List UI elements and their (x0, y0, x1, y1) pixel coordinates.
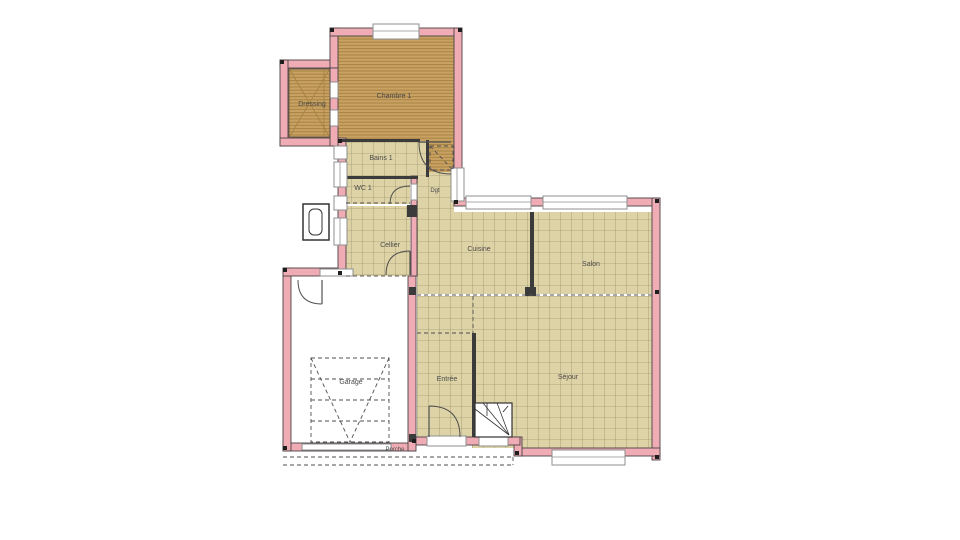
door-garage (298, 280, 322, 304)
utility-box (303, 204, 329, 240)
label-sejour: Séjour (558, 374, 579, 381)
label-dressing: Dressing (298, 101, 326, 108)
room-cellier (346, 206, 410, 276)
window-left-1 (334, 146, 347, 159)
floor-plan-page: Dressing Chambre 1 Bains 1 WC 1 Dgt Cell… (0, 0, 960, 540)
wall-right (652, 198, 660, 460)
sliding-opening-dressing-1 (330, 82, 338, 98)
wall-dressing-left (280, 60, 288, 146)
label-garage: Garage (339, 379, 362, 386)
window-left-4 (334, 218, 347, 245)
label-wc-1: WC 1 (354, 185, 372, 192)
label-dgt: Dgt (430, 188, 440, 194)
label-salon: Salon (582, 261, 600, 268)
label-cellier: Cellier (380, 242, 401, 249)
window-dgt-right (451, 168, 464, 201)
window-sejour-bottom (552, 450, 625, 465)
floor-plan-drawing: Dressing Chambre 1 Bains 1 WC 1 Dgt Cell… (0, 0, 960, 540)
room-salon (534, 212, 652, 294)
wall-garage-east (408, 276, 416, 451)
door-opening-wc (411, 184, 417, 200)
wall-cuisine-salon (530, 212, 534, 294)
window-left-3 (334, 196, 347, 210)
label-chambre-1: Chambre 1 (377, 93, 412, 100)
garage-door-opening (302, 444, 391, 450)
window-left-2 (334, 162, 347, 187)
door-opening-cellier-garage (320, 269, 353, 276)
label-bains-1: Bains 1 (369, 155, 392, 162)
staircase (475, 403, 512, 437)
window-salon-top (543, 196, 627, 209)
room-cuisine (417, 212, 530, 294)
label-porche: Porche (385, 447, 405, 453)
window-cuisine-top (466, 196, 531, 209)
wall-dressing-chambre (330, 68, 338, 146)
wall-bains-south (344, 176, 418, 179)
wall-chambre-south (338, 139, 420, 142)
room-entree (417, 296, 472, 437)
wall-garage-left (283, 268, 291, 451)
door-opening-entree (427, 436, 466, 446)
sliding-opening-dressing-2 (330, 110, 338, 126)
label-cuisine: Cuisine (467, 246, 490, 253)
garage-door-swing-left (311, 358, 350, 442)
column-garage-east-top (409, 287, 416, 295)
label-entree: Entrée (437, 376, 458, 383)
window-chambre-top (373, 24, 419, 39)
wall-bains-east (426, 140, 429, 177)
column-cellier (407, 205, 417, 217)
